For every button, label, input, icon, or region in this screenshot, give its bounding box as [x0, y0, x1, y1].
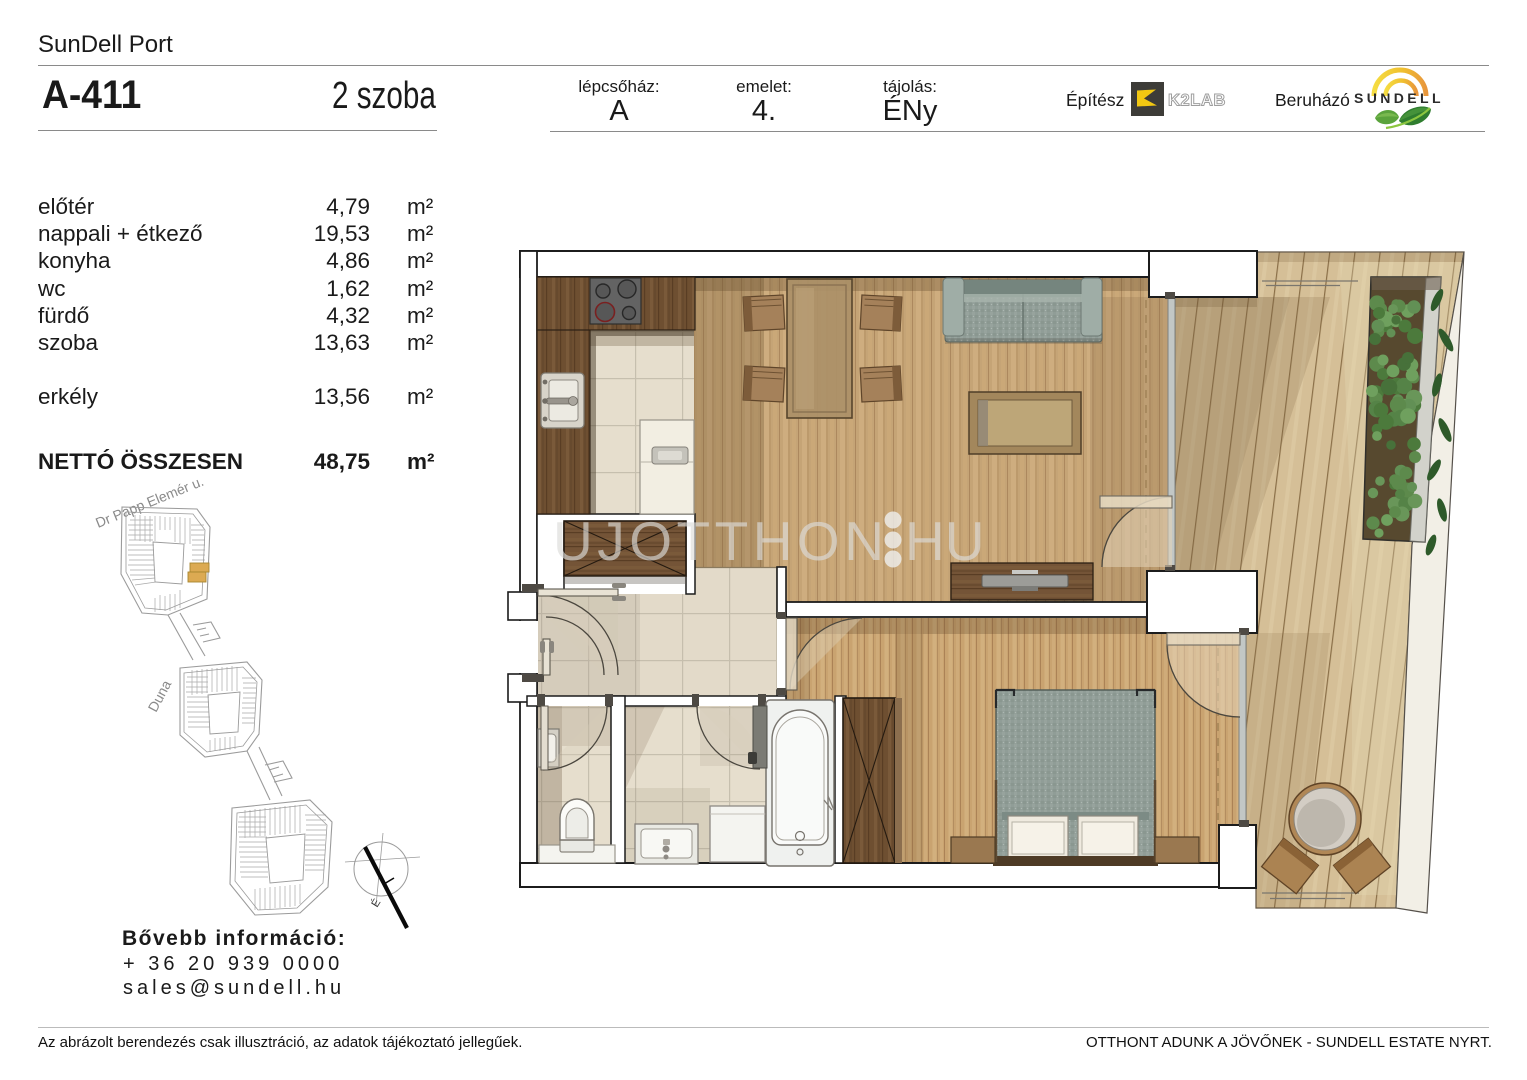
- svg-text:HU: HU: [905, 510, 984, 572]
- svg-text:UJOTTHON: UJOTTHON: [553, 510, 888, 572]
